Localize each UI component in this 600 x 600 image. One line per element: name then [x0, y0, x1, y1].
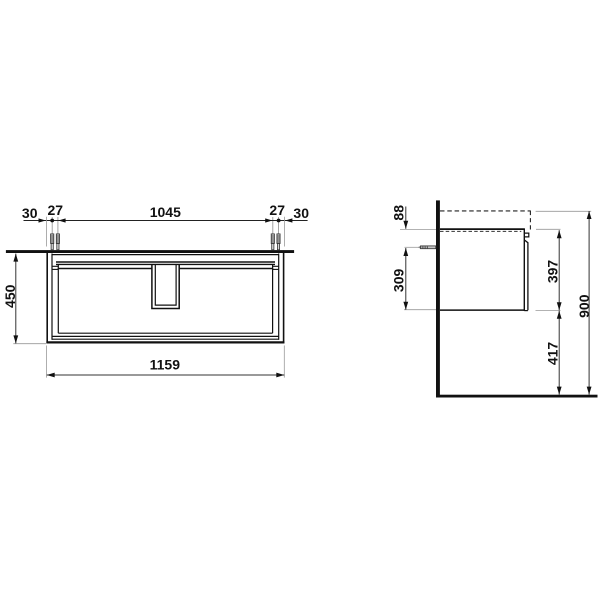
svg-text:309: 309 [391, 269, 407, 293]
svg-text:450: 450 [2, 284, 18, 308]
svg-text:27: 27 [48, 202, 64, 218]
svg-text:417: 417 [545, 342, 561, 366]
svg-text:397: 397 [545, 260, 561, 284]
svg-text:30: 30 [293, 205, 309, 221]
svg-text:900: 900 [576, 294, 592, 318]
svg-text:1159: 1159 [150, 356, 181, 372]
svg-text:30: 30 [22, 205, 38, 221]
svg-text:88: 88 [391, 205, 407, 221]
svg-text:1045: 1045 [150, 204, 181, 220]
svg-text:27: 27 [269, 202, 285, 218]
